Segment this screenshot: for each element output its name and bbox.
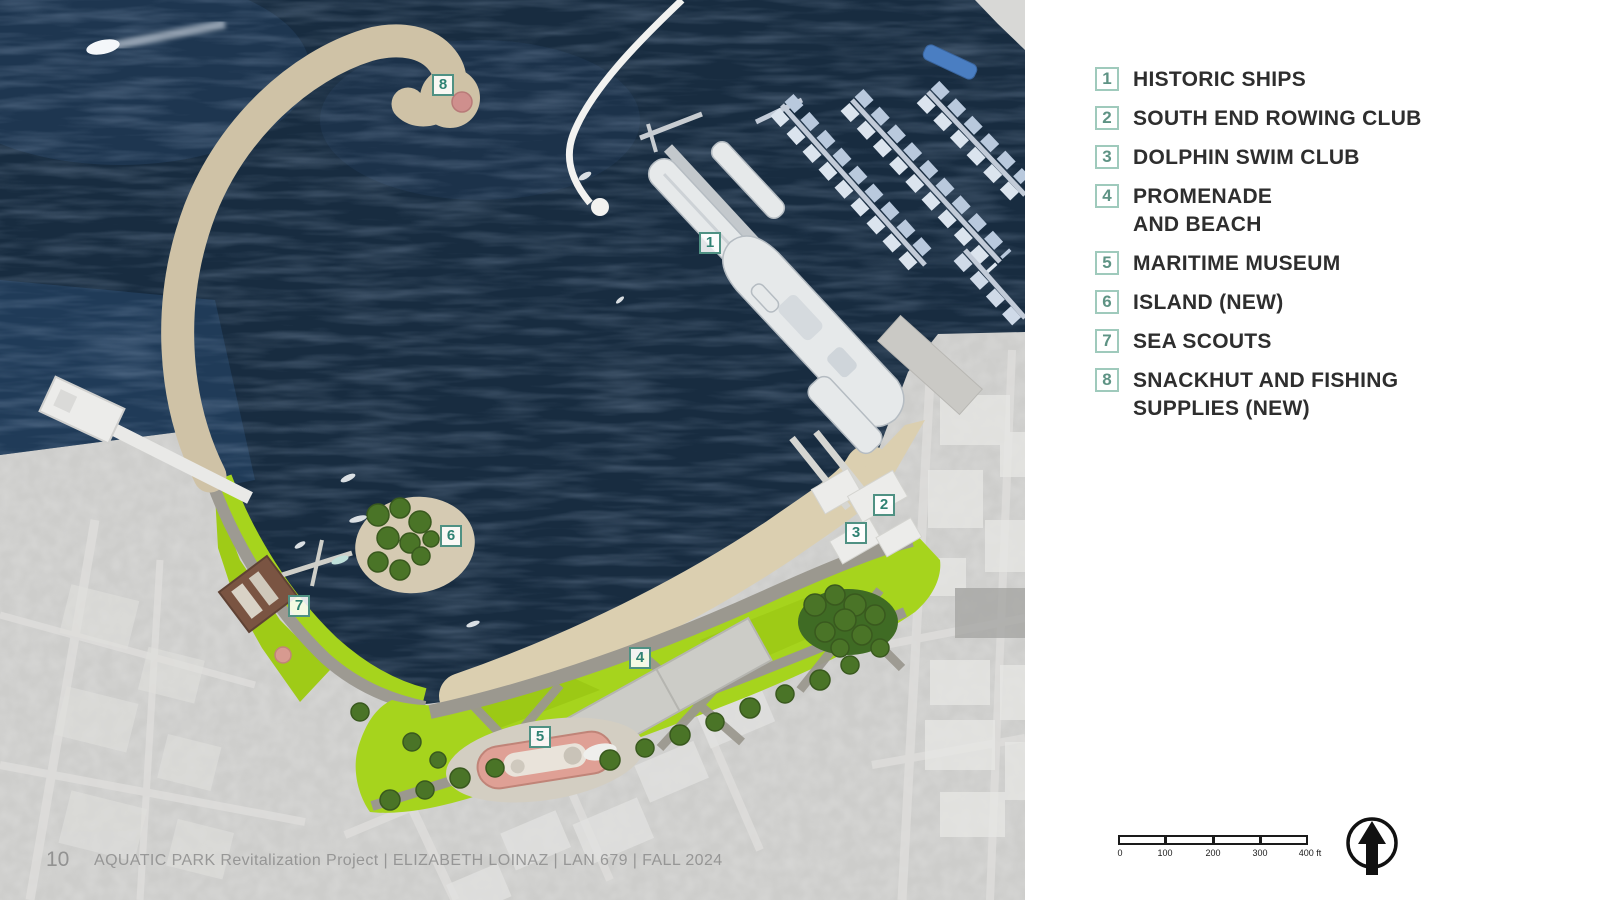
map-marker-1: 1	[699, 232, 721, 254]
map-marker-5: 5	[529, 726, 551, 748]
legend-label: SEA SCOUTS	[1133, 328, 1272, 356]
scale-label: 100	[1157, 848, 1172, 858]
site-plan-drawing	[0, 0, 1025, 900]
map-marker-6: 6	[440, 525, 462, 547]
legend-item-2: 2 SOUTH END ROWING CLUB	[1095, 105, 1422, 133]
scale-tick	[1259, 835, 1262, 845]
legend-label: MARITIME MUSEUM	[1133, 250, 1341, 278]
legend-number-box: 3	[1095, 145, 1119, 169]
legend-number-box: 6	[1095, 290, 1119, 314]
map-marker-7: 7	[288, 595, 310, 617]
legend-label: HISTORIC SHIPS	[1133, 66, 1306, 94]
legend-label: ISLAND (NEW)	[1133, 289, 1284, 317]
map-marker-3: 3	[845, 522, 867, 544]
legend-label: SNACKHUT AND FISHING SUPPLIES (NEW)	[1133, 367, 1398, 423]
scale-label: 0	[1117, 848, 1122, 858]
snack-hut	[452, 92, 472, 112]
legend-item-6: 6 ISLAND (NEW)	[1095, 289, 1284, 317]
legend-item-4: 4 PROMENADE AND BEACH	[1095, 183, 1272, 239]
legend-label: PROMENADE AND BEACH	[1133, 183, 1272, 239]
legend-number-box: 4	[1095, 184, 1119, 208]
legend-item-5: 5 MARITIME MUSEUM	[1095, 250, 1341, 278]
scale-label: 300	[1252, 848, 1267, 858]
legend-item-8: 8 SNACKHUT AND FISHING SUPPLIES (NEW)	[1095, 367, 1398, 423]
scale-bar: 0 100 200 300 400 ft	[1118, 835, 1308, 863]
map-marker-8: 8	[432, 74, 454, 96]
legend-label: SOUTH END ROWING CLUB	[1133, 105, 1422, 133]
map-marker-4: 4	[629, 647, 651, 669]
legend-item-7: 7 SEA SCOUTS	[1095, 328, 1272, 356]
legend-number-box: 7	[1095, 329, 1119, 353]
north-arrow-icon	[1341, 815, 1403, 879]
legend-item-1: 1 HISTORIC SHIPS	[1095, 66, 1306, 94]
legend-item-3: 3 DOLPHIN SWIM CLUB	[1095, 144, 1360, 172]
legend-number-box: 1	[1095, 67, 1119, 91]
legend-number-box: 5	[1095, 251, 1119, 275]
scale-label: 200	[1205, 848, 1220, 858]
legend-number-box: 8	[1095, 368, 1119, 392]
legend-panel: 1 HISTORIC SHIPS 2 SOUTH END ROWING CLUB…	[1025, 0, 1600, 900]
plan-sheet: 1 2 3 4 5 6 7 8 10 AQUATIC PARK Revitali…	[0, 0, 1600, 900]
scale-label: 400 ft	[1299, 848, 1322, 858]
scale-tick	[1164, 835, 1167, 845]
site-plan-map: 1 2 3 4 5 6 7 8 10 AQUATIC PARK Revitali…	[0, 0, 1025, 900]
map-marker-2: 2	[873, 494, 895, 516]
scale-tick	[1212, 835, 1215, 845]
legend-label: DOLPHIN SWIM CLUB	[1133, 144, 1360, 172]
legend-number-box: 2	[1095, 106, 1119, 130]
